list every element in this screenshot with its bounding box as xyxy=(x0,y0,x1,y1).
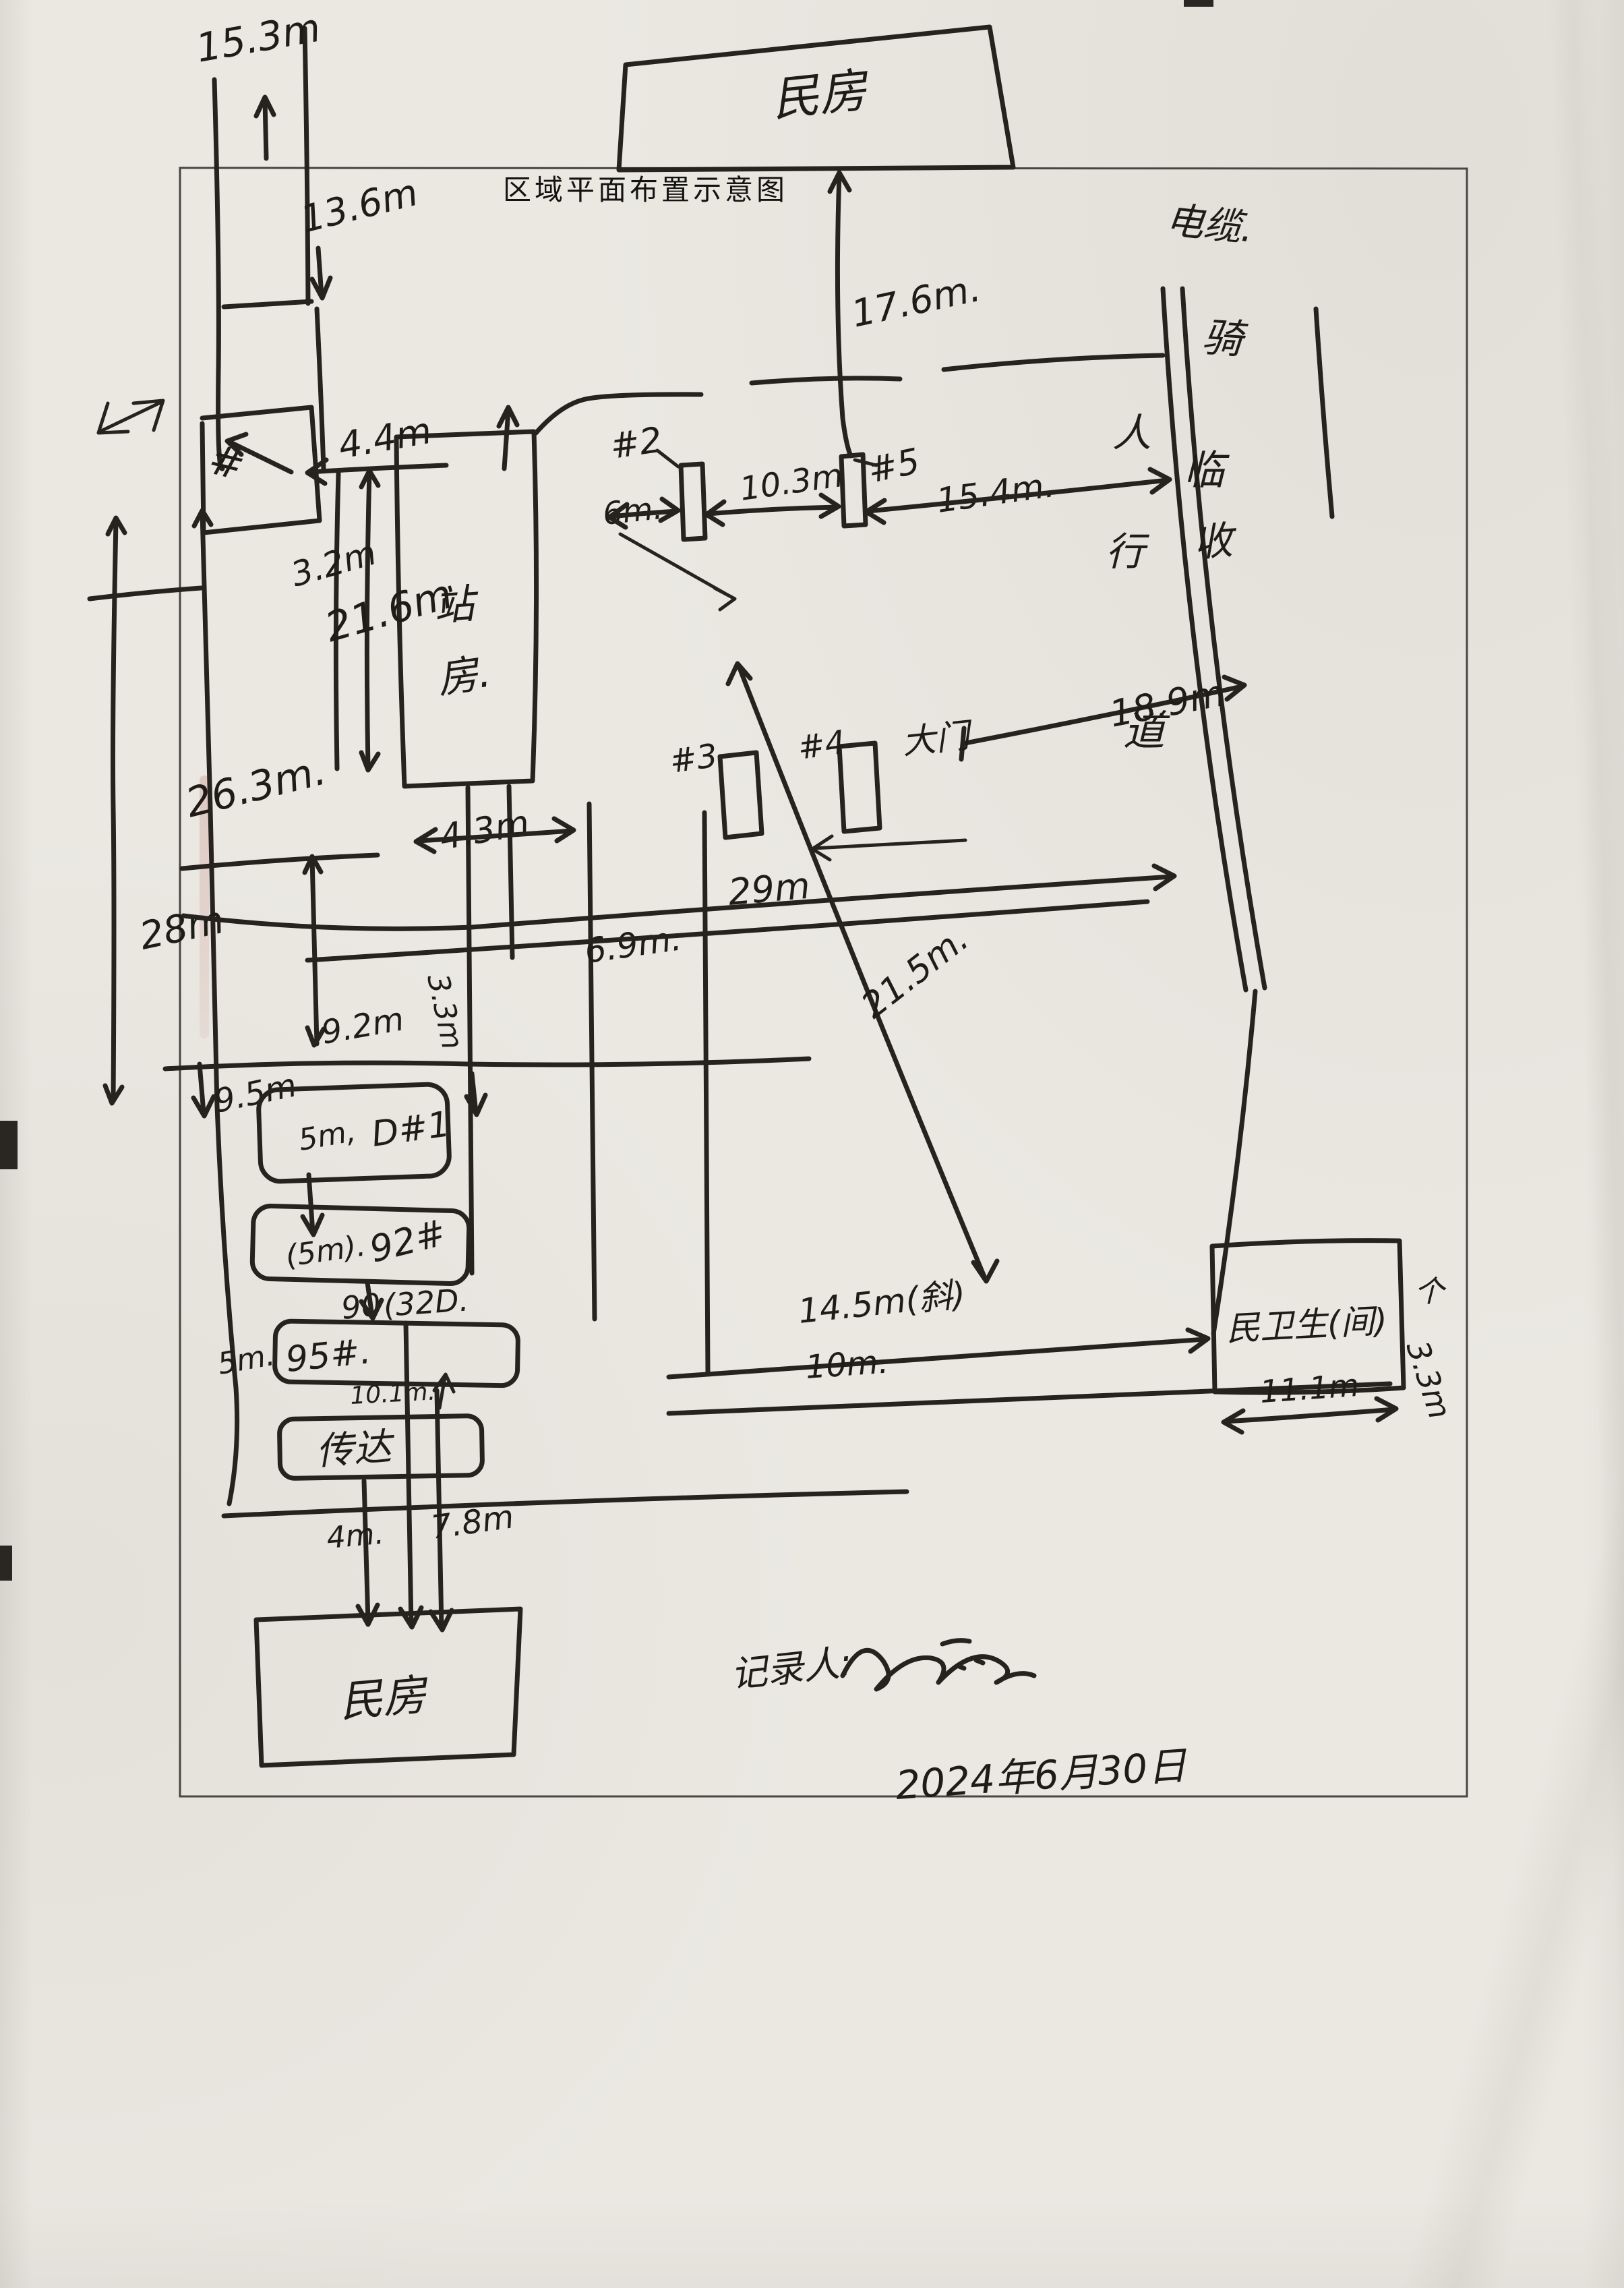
sidewalk-line-left xyxy=(1163,289,1246,990)
pole-3-label: #3 xyxy=(667,737,720,781)
station-label-2: 房. xyxy=(434,649,493,703)
roadside-col-2: 临 xyxy=(1184,447,1230,494)
dim-4-3m: 4.3m xyxy=(437,803,533,858)
dim-3-3m-vertical: 3.3m xyxy=(420,971,469,1053)
reception-label: 传达 xyxy=(314,1425,396,1474)
pole-3-rect xyxy=(720,753,762,838)
note-32d: (32D. xyxy=(382,1281,470,1324)
pole-92-label: 92# xyxy=(365,1211,450,1271)
wall-line-lower xyxy=(307,902,1147,960)
dim-10m: 10m. xyxy=(804,1343,890,1386)
sidewalk-char-1: 人 xyxy=(1112,410,1151,456)
partition-line-c xyxy=(589,804,595,1319)
roadside-col-3: 收 xyxy=(1192,517,1239,566)
fence-line-3 xyxy=(944,355,1163,370)
dim-4m: 4m. xyxy=(326,1517,386,1556)
pole-4-label: #4 xyxy=(795,724,848,767)
dim-26-3m: 26.3m. xyxy=(181,747,331,827)
dim-6-9m: 6.9m. xyxy=(582,918,684,970)
dim-11-1m: 11.1m xyxy=(1259,1367,1360,1410)
measure-line-28m xyxy=(113,521,117,1101)
date-label: 2024年6月30日 xyxy=(894,1742,1189,1809)
page-title: 区域平面布置示意图 xyxy=(503,175,788,206)
dim-9-2m: 9.2m xyxy=(318,1000,407,1052)
measure-29m-wall xyxy=(183,866,1174,929)
partition-line-a xyxy=(468,788,472,1273)
sidewalk-tail-line xyxy=(1213,991,1255,1334)
sidewalk-char-2: 行 xyxy=(1106,529,1150,575)
dim-17-6m: 17.6m. xyxy=(847,266,984,336)
strip-wall-right-upper xyxy=(305,28,308,303)
pole-2-rect xyxy=(681,464,705,539)
dim-9-5m: 9.5m xyxy=(211,1066,300,1120)
frame-border xyxy=(180,168,1467,1796)
dim-18-9m: 18.9m xyxy=(1106,672,1228,736)
pole-d1-label: D#1 xyxy=(369,1104,452,1155)
dim-21-6m: 21.6m xyxy=(320,570,458,651)
dim-13-6m: 13.6m xyxy=(297,171,422,241)
recorder-label: 记录人: xyxy=(729,1641,854,1695)
dim-4-4m: 4.4m xyxy=(335,409,434,467)
signature-scrawl xyxy=(843,1641,1034,1689)
dim-5m-b: (5m). xyxy=(283,1229,367,1274)
bottom-house-label: 民房 xyxy=(338,1670,431,1728)
arrow-9-5-down xyxy=(193,1064,214,1116)
pole-95-label: 95#. xyxy=(284,1331,373,1380)
frame-cross-arrows xyxy=(98,401,163,433)
partition-line-d xyxy=(704,813,708,1372)
arrow-left-mid xyxy=(812,836,965,860)
wall-line-d1-row xyxy=(165,1059,809,1069)
dim-21-5m: 21.5m. xyxy=(854,918,976,1026)
pole-2-label: #2 xyxy=(607,420,664,467)
up-glyph: 个 xyxy=(1414,1274,1447,1309)
strip-wall-left xyxy=(214,80,222,469)
scanned-sketch-page: 区域平面布置示意图 15.3m 13.6m # 26.3m. 28m 站 房. xyxy=(0,0,1624,2288)
pole-5-rect xyxy=(841,454,866,526)
dim-10-1m: 10.1m. xyxy=(349,1378,436,1410)
dim-14-5m: 14.5m(斜) xyxy=(796,1274,967,1331)
wall-line-below-reception xyxy=(224,1492,907,1516)
arrow-15-3-shaft xyxy=(265,100,266,158)
dim-3-3m-right: 3.3m xyxy=(1400,1337,1459,1424)
cable-line xyxy=(1316,309,1332,517)
top-house-label: 民房 xyxy=(769,62,872,127)
measure-6m-tail xyxy=(620,534,735,610)
fence-line-2 xyxy=(752,378,900,383)
measure-17-6-shaft xyxy=(837,174,851,456)
left-wall-line xyxy=(90,588,201,599)
arrow-up-fence xyxy=(499,407,517,469)
dim-29m: 29m xyxy=(727,864,812,914)
strip-wall-right-lower xyxy=(317,309,324,469)
gate-label: 大门 xyxy=(900,715,975,762)
cable-label: 电缆. xyxy=(1164,198,1256,251)
dim-5m-a: 5m, xyxy=(296,1114,358,1158)
site-plan-drawing: 区域平面布置示意图 15.3m 13.6m # 26.3m. 28m 站 房. xyxy=(0,0,1624,2288)
dim-5m-c: 5m. xyxy=(215,1338,277,1382)
strip-step-line xyxy=(224,301,311,307)
toilet-label: 民卫生(间) xyxy=(1226,1301,1389,1349)
measure-14-5m xyxy=(669,1330,1208,1377)
roadside-col-1: 骑 xyxy=(1201,314,1250,364)
measure-4-4-shaft xyxy=(309,465,446,472)
